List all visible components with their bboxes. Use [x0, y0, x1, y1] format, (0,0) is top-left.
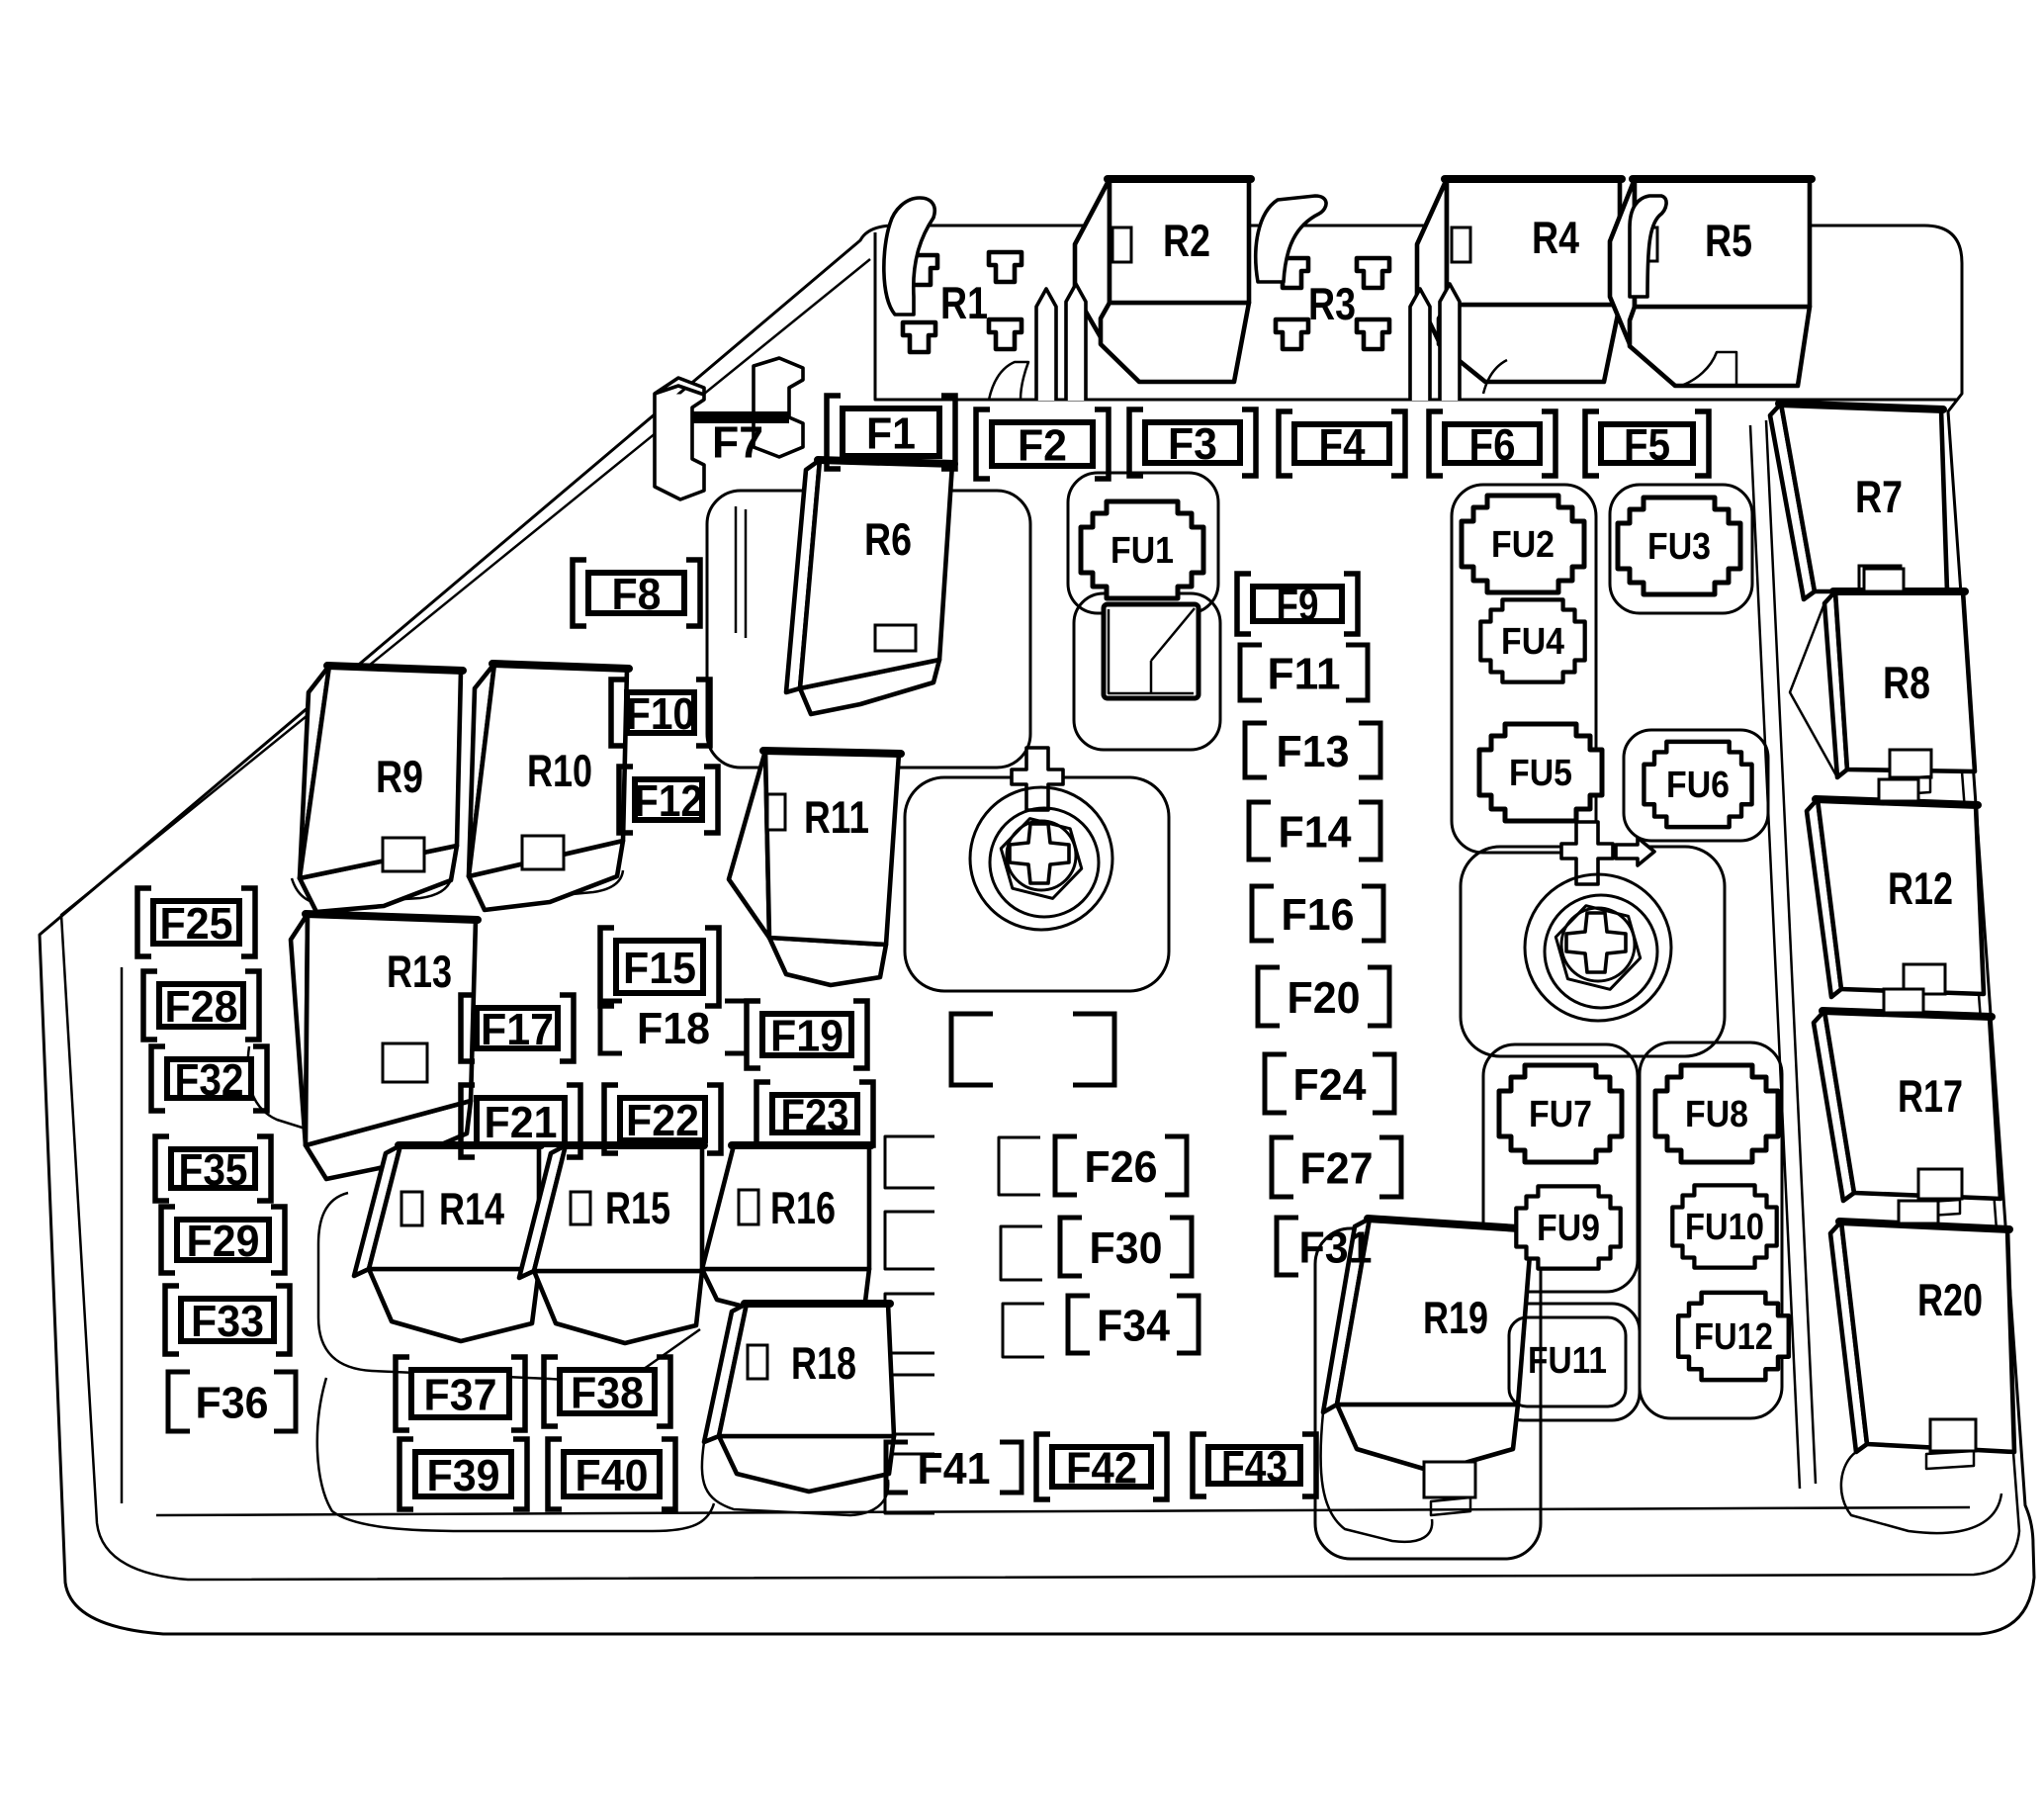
svg-text:F18: F18 [637, 1003, 710, 1053]
svg-text:F37: F37 [424, 1370, 497, 1420]
svg-text:R3: R3 [1308, 278, 1356, 329]
svg-text:R11: R11 [804, 791, 869, 843]
svg-text:R8: R8 [1883, 657, 1930, 708]
svg-text:F42: F42 [1066, 1443, 1137, 1494]
svg-text:F40: F40 [576, 1450, 649, 1500]
svg-text:F41: F41 [918, 1443, 991, 1494]
svg-text:FU12: FU12 [1694, 1316, 1773, 1358]
svg-text:F4: F4 [1319, 419, 1366, 470]
svg-text:FU4: FU4 [1501, 621, 1564, 663]
svg-text:F29: F29 [187, 1216, 260, 1266]
svg-text:F34: F34 [1097, 1301, 1170, 1351]
svg-text:F32: F32 [175, 1054, 244, 1105]
svg-text:R16: R16 [770, 1182, 836, 1233]
svg-text:FU9: FU9 [1537, 1208, 1600, 1249]
svg-text:FU3: FU3 [1647, 526, 1711, 568]
svg-text:F1: F1 [866, 408, 916, 459]
svg-text:F12: F12 [634, 775, 703, 826]
svg-text:F8: F8 [612, 569, 662, 619]
svg-text:F11: F11 [1268, 649, 1341, 699]
svg-text:F28: F28 [165, 981, 238, 1032]
svg-text:F7: F7 [712, 417, 763, 468]
svg-text:FU2: FU2 [1491, 524, 1555, 566]
svg-text:R2: R2 [1163, 215, 1210, 266]
svg-text:R20: R20 [1917, 1274, 1983, 1325]
svg-text:F35: F35 [179, 1144, 248, 1195]
svg-text:F27: F27 [1300, 1143, 1374, 1194]
svg-text:F5: F5 [1624, 419, 1670, 470]
svg-text:F24: F24 [1293, 1059, 1367, 1110]
svg-text:FU6: FU6 [1666, 765, 1730, 806]
svg-text:R17: R17 [1898, 1070, 1963, 1122]
svg-text:F21: F21 [485, 1097, 558, 1147]
svg-text:F3: F3 [1168, 418, 1217, 469]
svg-text:F22: F22 [626, 1095, 699, 1145]
svg-text:F6: F6 [1469, 419, 1516, 470]
svg-text:R1: R1 [940, 277, 988, 328]
svg-text:FU10: FU10 [1685, 1207, 1764, 1248]
svg-text:F17: F17 [481, 1004, 554, 1054]
svg-text:FU11: FU11 [1528, 1340, 1607, 1382]
svg-text:F26: F26 [1085, 1141, 1158, 1192]
svg-text:F14: F14 [1279, 807, 1352, 858]
svg-text:F10: F10 [626, 688, 695, 739]
svg-text:F20: F20 [1288, 972, 1361, 1023]
svg-text:F9: F9 [1277, 580, 1319, 630]
svg-text:R6: R6 [864, 513, 912, 565]
svg-text:F13: F13 [1277, 726, 1350, 776]
svg-text:F31: F31 [1299, 1222, 1373, 1273]
svg-text:F38: F38 [571, 1368, 644, 1418]
svg-text:F16: F16 [1282, 889, 1355, 940]
svg-text:F39: F39 [427, 1450, 500, 1500]
svg-text:R7: R7 [1855, 471, 1903, 522]
svg-text:R13: R13 [387, 946, 452, 997]
svg-text:R18: R18 [791, 1337, 856, 1389]
svg-text:F19: F19 [770, 1011, 844, 1061]
svg-text:R5: R5 [1705, 215, 1752, 266]
svg-text:FU5: FU5 [1509, 753, 1572, 794]
svg-text:R19: R19 [1423, 1292, 1488, 1343]
svg-text:F36: F36 [196, 1378, 269, 1428]
svg-text:R15: R15 [605, 1182, 670, 1233]
svg-text:F43: F43 [1221, 1441, 1288, 1492]
svg-text:F15: F15 [623, 943, 696, 993]
svg-text:FU7: FU7 [1529, 1094, 1592, 1135]
svg-text:FU8: FU8 [1685, 1094, 1748, 1135]
svg-text:F33: F33 [191, 1296, 264, 1346]
svg-text:R14: R14 [439, 1183, 504, 1234]
svg-text:R4: R4 [1532, 212, 1579, 263]
svg-text:F25: F25 [160, 898, 233, 949]
svg-text:F2: F2 [1018, 420, 1067, 471]
svg-text:F30: F30 [1090, 1222, 1163, 1273]
svg-text:R10: R10 [527, 745, 592, 796]
svg-text:R12: R12 [1888, 862, 1953, 914]
svg-text:R9: R9 [376, 751, 423, 802]
svg-text:FU1: FU1 [1111, 530, 1174, 572]
svg-text:F23: F23 [781, 1090, 849, 1140]
